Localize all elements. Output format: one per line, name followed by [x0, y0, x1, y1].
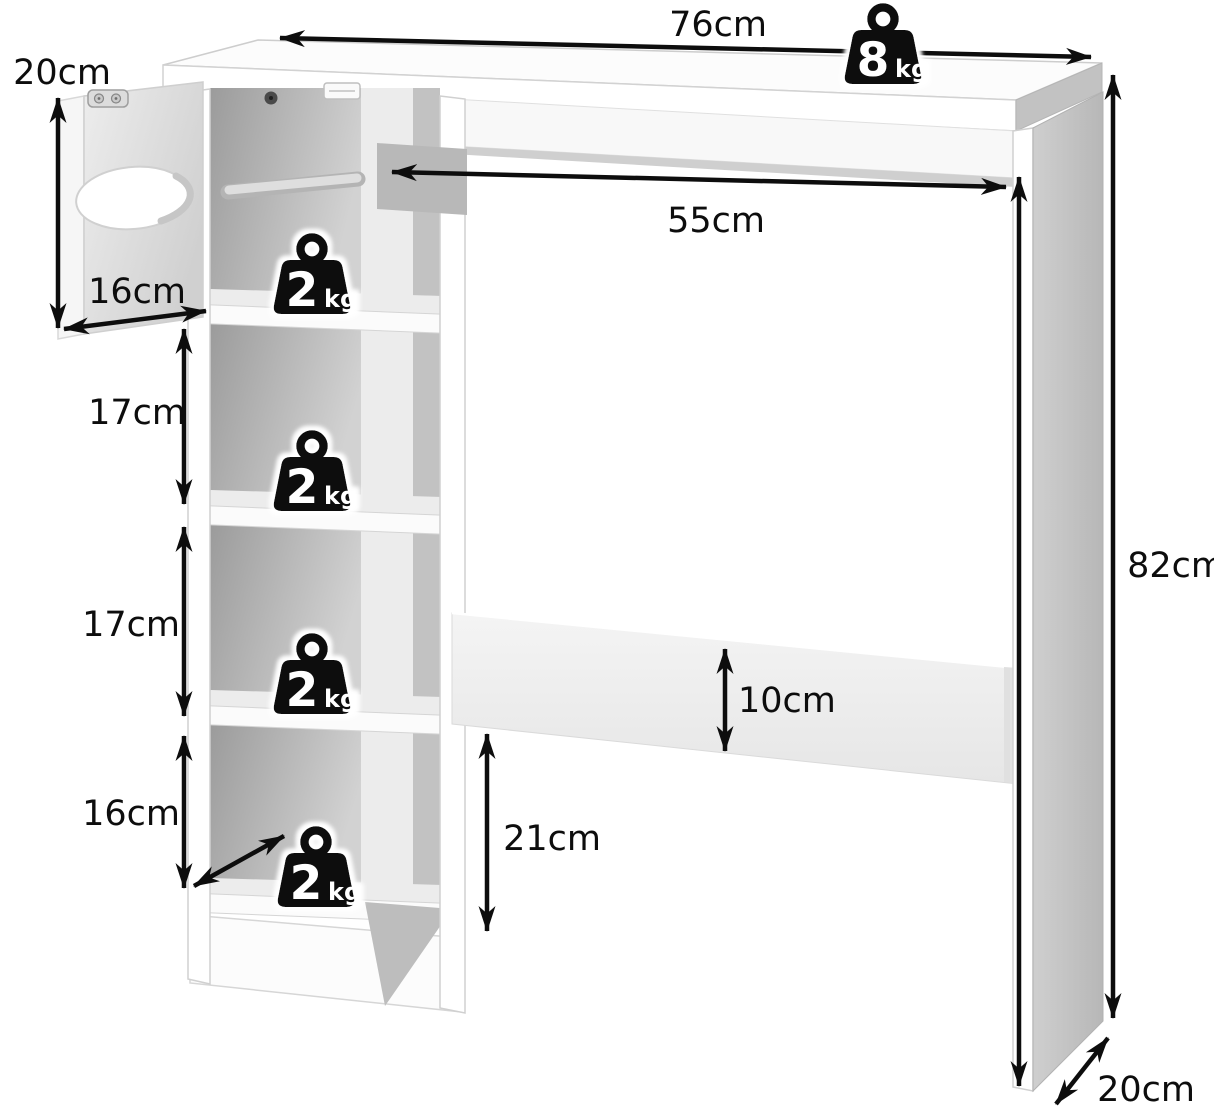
- badge-value: 2: [290, 856, 323, 911]
- badge-unit: kg: [324, 685, 357, 713]
- badge-value: 2: [286, 460, 319, 515]
- badge-unit: kg: [324, 285, 357, 313]
- label-crossbar-clearance: 21cm: [503, 819, 601, 859]
- weight-icon-ring: [872, 8, 895, 31]
- label-opening-width: 55cm: [667, 201, 765, 241]
- crossbar-face: [452, 613, 1018, 784]
- partition-front-edge: [440, 96, 465, 1013]
- label-unit-height: 82cm: [1127, 546, 1214, 586]
- label-cubby3-height: 17cm: [82, 605, 180, 645]
- label-cubby4-height: 16cm: [82, 794, 180, 834]
- badge-unit: kg: [895, 55, 928, 83]
- badge-value: 2: [286, 263, 319, 318]
- right-leg: [1013, 92, 1103, 1091]
- hinge-mount-screw: [269, 96, 273, 100]
- label-tabletop-width: 76cm: [669, 5, 767, 45]
- label-leg-depth: 20cm: [1097, 1070, 1195, 1110]
- hinge-plate-frame: [324, 83, 360, 99]
- leg-side-face: [1033, 92, 1103, 1091]
- apron-corner-shadow: [377, 143, 467, 215]
- label-door-height: 20cm: [13, 53, 111, 93]
- crossbar: [452, 613, 1018, 784]
- badge-unit: kg: [328, 878, 361, 906]
- leg-front-edge: [1013, 128, 1033, 1091]
- weight-badge-tabletop: 8 kg: [845, 8, 928, 89]
- door-edge-face: [58, 96, 84, 339]
- badge-value: 8: [857, 33, 890, 88]
- label-crossbar-width: 10cm: [738, 681, 836, 721]
- product-dimension-diagram: 76cm 20cm 16cm 17cm 17cm 16cm 55cm 82cm …: [0, 0, 1214, 1115]
- badge-unit: kg: [324, 482, 357, 510]
- badge-value: 2: [286, 663, 319, 718]
- diagram-canvas: 76cm 20cm 16cm 17cm 17cm 16cm 55cm 82cm …: [0, 0, 1214, 1115]
- label-door-width: 16cm: [88, 272, 186, 312]
- label-cubby2-height: 17cm: [88, 393, 186, 433]
